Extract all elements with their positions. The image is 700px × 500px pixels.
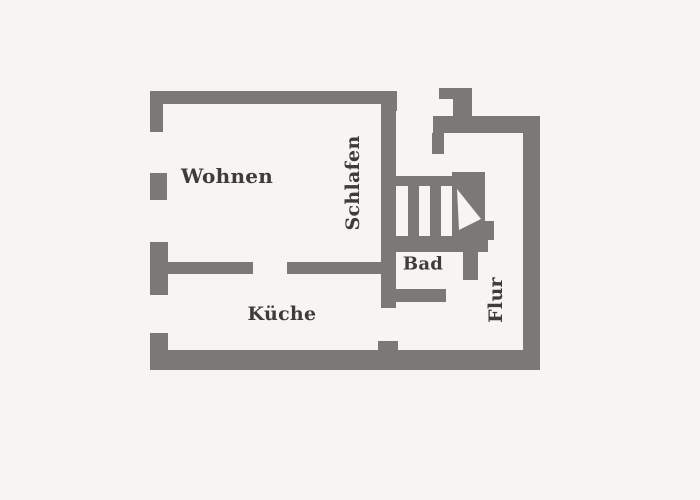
room-label-wohnen: Wohnen: [181, 164, 273, 188]
wall-stair-divider-stub: [432, 133, 444, 154]
wall-corner-top-left: [150, 91, 163, 132]
stair-landing-bump: [481, 221, 494, 240]
wall-room-divider-left: [168, 262, 253, 274]
wall-flur-top: [433, 116, 540, 133]
wall-middle-vertical: [381, 104, 396, 308]
room-label-flur: Flur: [485, 277, 507, 323]
wall-bad-bottom: [381, 289, 446, 302]
room-label-kueche: Küche: [248, 303, 317, 325]
wall-right: [523, 116, 540, 370]
wall-stair-bad: [381, 236, 488, 252]
wall-entry-stub-side: [453, 96, 472, 118]
room-label-schlafen: Schlafen: [342, 135, 364, 230]
room-label-bad: Bad: [403, 254, 443, 275]
stair-top-bar: [396, 176, 452, 186]
wall-middle-bottom-stub: [378, 341, 398, 350]
wall-bad-flur-divider: [463, 252, 478, 280]
wall-pier-middle-left: [150, 242, 168, 295]
wall-room-divider-right: [287, 262, 381, 274]
stair-tread-line-1: [408, 186, 419, 236]
wall-pier-upper-left: [150, 173, 167, 200]
stair-tread-line-2: [430, 186, 441, 236]
floor-plan: Wohnen Schlafen Küche Bad Flur: [0, 0, 700, 500]
wall-top: [150, 91, 397, 104]
wall-bottom: [150, 350, 540, 370]
